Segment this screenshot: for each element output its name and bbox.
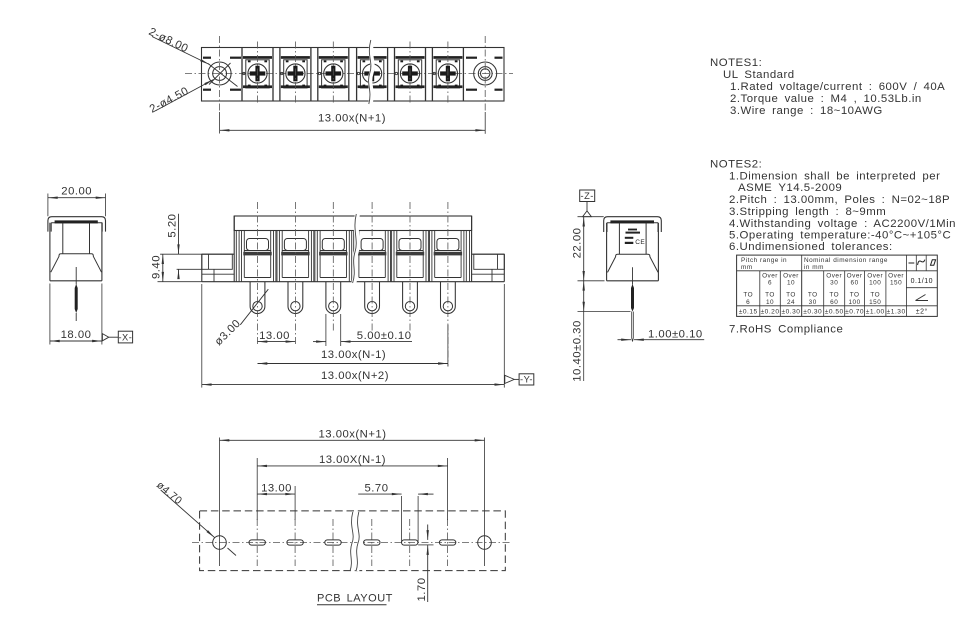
svg-text:NOTES2:: NOTES2:: [710, 159, 762, 171]
svg-text:-Z-: -Z-: [581, 191, 594, 201]
svg-text:Over: Over: [867, 273, 883, 280]
svg-text:2.Pitch : 13.00mm, Poles : N=0: 2.Pitch : 13.00mm, Poles : N=02~18P: [729, 194, 950, 206]
svg-text:TO: TO: [829, 292, 839, 299]
svg-text:100: 100: [869, 280, 881, 287]
svg-text:NOTES1:: NOTES1:: [710, 57, 762, 69]
svg-text:13.00X(N-1): 13.00X(N-1): [319, 454, 386, 466]
svg-text:-Y-: -Y-: [520, 375, 533, 385]
svg-text:±0.15: ±0.15: [739, 309, 758, 316]
svg-text:2.Torque value : M4 , 10.53Lb.: 2.Torque value : M4 , 10.53Lb.in: [730, 93, 922, 105]
svg-text:TO: TO: [743, 292, 753, 299]
svg-text:±0.50: ±0.50: [825, 309, 844, 316]
svg-text:Over: Over: [847, 273, 863, 280]
svg-text:60: 60: [851, 280, 859, 287]
svg-text:6: 6: [746, 299, 750, 306]
svg-text:1.00±0.10: 1.00±0.10: [648, 328, 703, 340]
svg-text:6.Undimensioned tolerances:: 6.Undimensioned tolerances:: [729, 241, 893, 253]
svg-text:±1.00: ±1.00: [866, 309, 885, 316]
svg-text:1.70: 1.70: [416, 578, 428, 602]
svg-text:150: 150: [869, 299, 881, 306]
svg-text:10: 10: [787, 280, 795, 287]
svg-text:4.Withstanding voltage : AC220: 4.Withstanding voltage : AC2200V/1Min: [729, 218, 956, 230]
svg-text:9.40: 9.40: [150, 255, 162, 279]
svg-text:1.Dimension shall be interpret: 1.Dimension shall be interpreted per: [729, 171, 940, 183]
svg-text:6: 6: [768, 280, 772, 287]
svg-text:5.00±0.10: 5.00±0.10: [357, 330, 412, 342]
svg-text:TO: TO: [808, 292, 818, 299]
svg-text:mm: mm: [741, 264, 753, 271]
svg-text:5.20: 5.20: [166, 214, 178, 238]
svg-text:PCB LAYOUT: PCB LAYOUT: [317, 593, 393, 605]
svg-text:Over: Over: [783, 273, 799, 280]
svg-text:30: 30: [830, 280, 838, 287]
svg-text:13.00x(N+2): 13.00x(N+2): [321, 370, 389, 382]
svg-text:UL Standard: UL Standard: [723, 69, 795, 81]
svg-text:±0.30: ±0.30: [782, 309, 801, 316]
svg-text:TO: TO: [850, 292, 860, 299]
svg-text:10: 10: [766, 299, 774, 306]
svg-text:20.00: 20.00: [61, 186, 92, 198]
svg-text:Over: Over: [826, 273, 842, 280]
svg-text:Nominal dimension range: Nominal dimension range: [804, 257, 888, 264]
svg-text:±0.70: ±0.70: [845, 309, 864, 316]
svg-text:10.40±0.30: 10.40±0.30: [572, 320, 584, 381]
svg-text:0.1/10: 0.1/10: [911, 278, 933, 285]
svg-text:5.Operating temperature:-40°C~: 5.Operating temperature:-40°C~+105°C: [729, 230, 951, 242]
svg-text:±0.30: ±0.30: [803, 309, 822, 316]
svg-text:18.00: 18.00: [61, 329, 92, 341]
svg-text:13.00x(N-1): 13.00x(N-1): [321, 349, 386, 361]
svg-text:13.00x(N+1): 13.00x(N+1): [318, 113, 386, 125]
svg-text:Over: Over: [888, 273, 904, 280]
svg-text:±1.30: ±1.30: [887, 309, 906, 316]
svg-text:3.Stripping length : 8~9mm: 3.Stripping length : 8~9mm: [729, 206, 886, 218]
svg-text:1.Rated voltage/current : 600V: 1.Rated voltage/current : 600V / 40A: [730, 81, 945, 93]
svg-text:3.Wire range : 18~10AWG: 3.Wire range : 18~10AWG: [730, 105, 883, 117]
svg-text:ASME Y14.5-2009: ASME Y14.5-2009: [738, 182, 842, 194]
svg-text:±2°: ±2°: [916, 308, 928, 316]
svg-text:in mm: in mm: [804, 264, 824, 271]
svg-text:CE: CE: [635, 239, 645, 246]
svg-text:13.00: 13.00: [259, 330, 290, 342]
svg-text:TO: TO: [870, 292, 880, 299]
svg-text:Over: Over: [762, 273, 778, 280]
svg-text:150: 150: [890, 280, 902, 287]
svg-text:5.70: 5.70: [365, 483, 389, 495]
svg-text:22.00: 22.00: [572, 228, 584, 259]
svg-text:±0.20: ±0.20: [761, 309, 780, 316]
svg-text:Pitch range in: Pitch range in: [741, 257, 787, 264]
svg-text:30: 30: [809, 299, 817, 306]
svg-text:TO: TO: [786, 292, 796, 299]
svg-text:TO: TO: [765, 292, 775, 299]
svg-text:24: 24: [787, 299, 795, 306]
svg-text:13.00x(N+1): 13.00x(N+1): [319, 428, 387, 440]
svg-text:100: 100: [849, 299, 861, 306]
svg-text:-X-: -X-: [118, 333, 132, 343]
svg-text:60: 60: [830, 299, 838, 306]
svg-text:13.00: 13.00: [261, 483, 292, 495]
svg-text:7.RoHS Compliance: 7.RoHS Compliance: [729, 324, 843, 336]
